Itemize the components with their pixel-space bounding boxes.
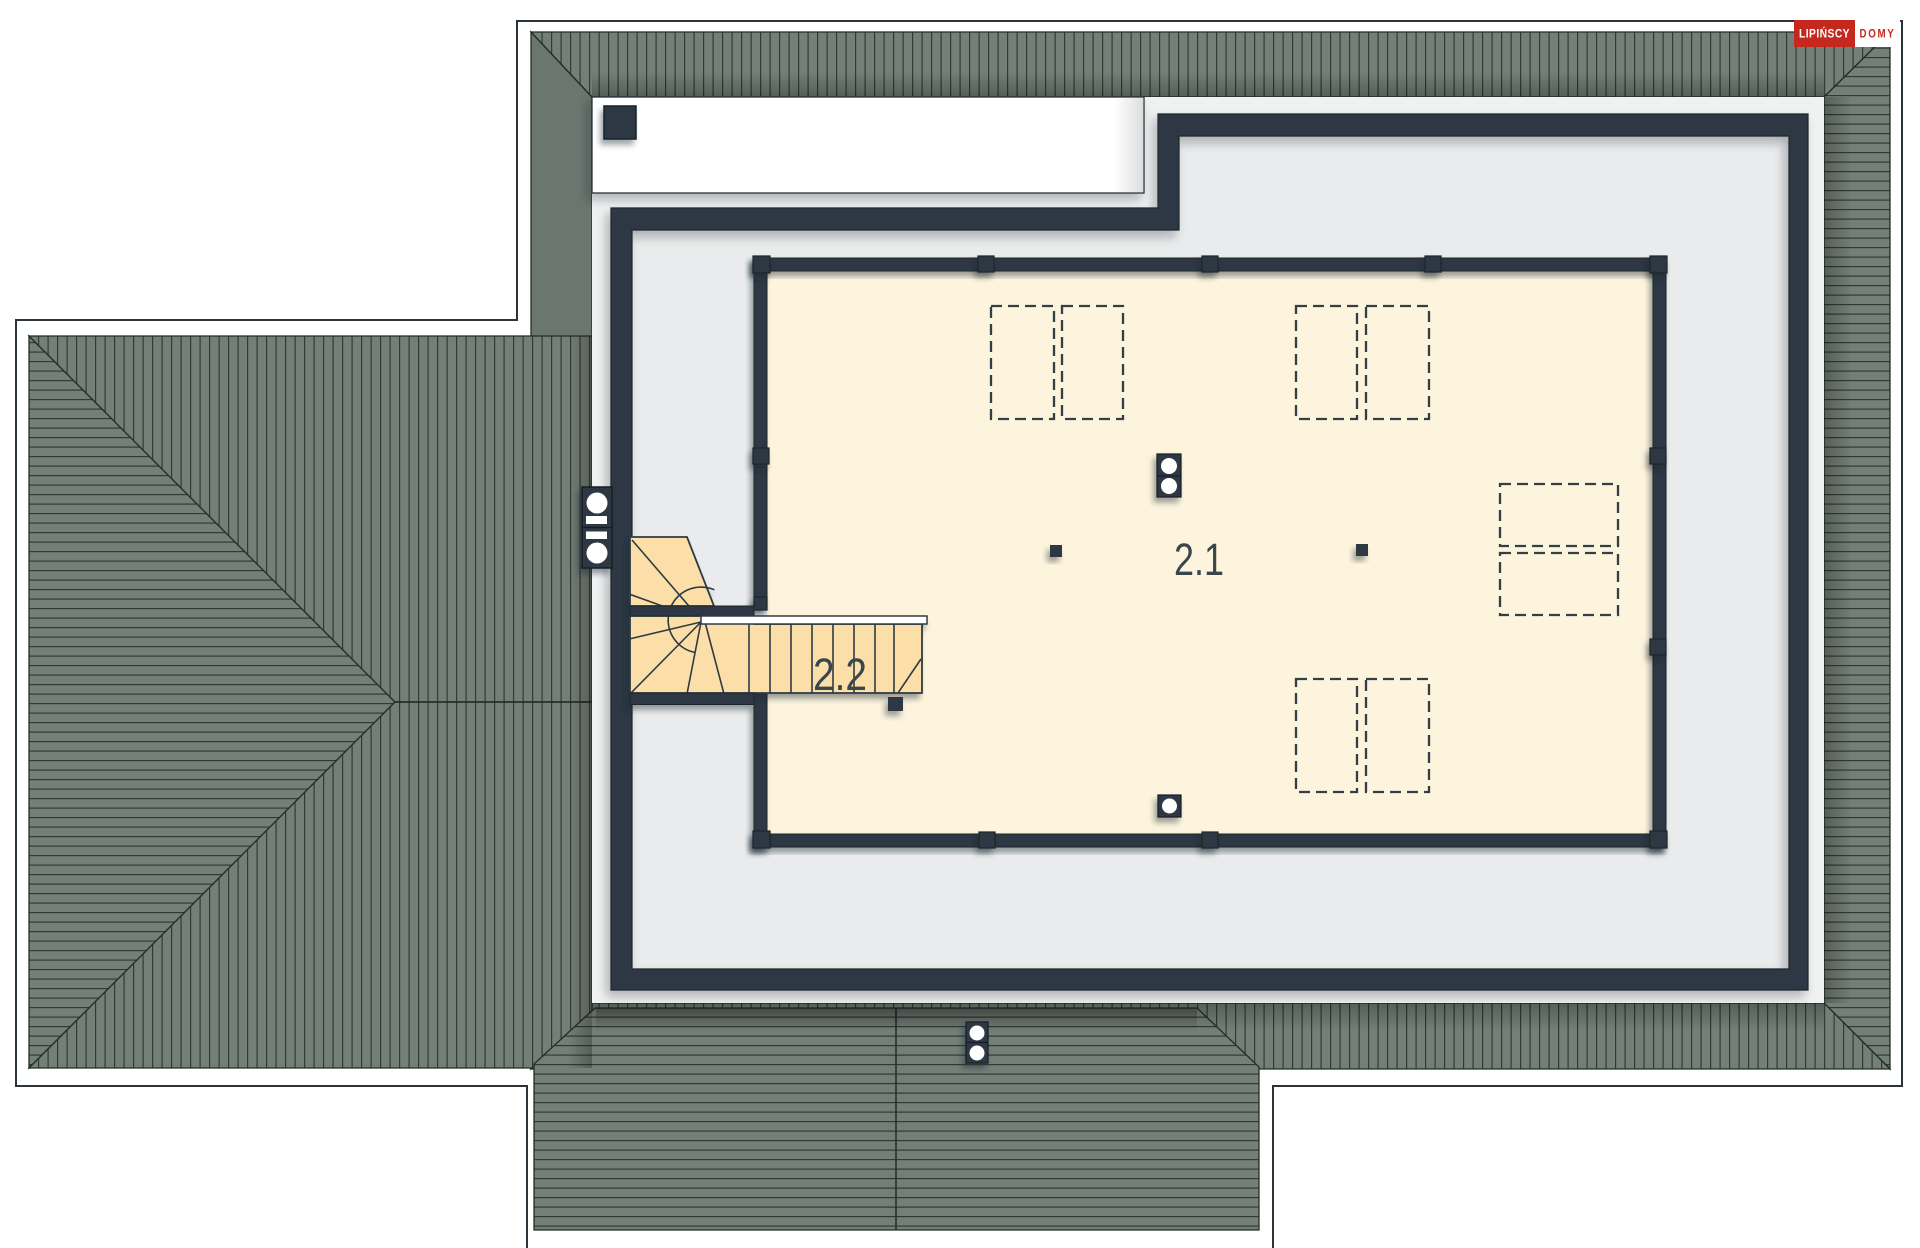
svg-text:2.1: 2.1 (1174, 534, 1224, 585)
svg-text:DOMY: DOMY (1860, 29, 1896, 41)
svg-text:2.2: 2.2 (813, 649, 867, 700)
svg-text:LIPIŃSCY: LIPIŃSCY (1799, 28, 1850, 41)
